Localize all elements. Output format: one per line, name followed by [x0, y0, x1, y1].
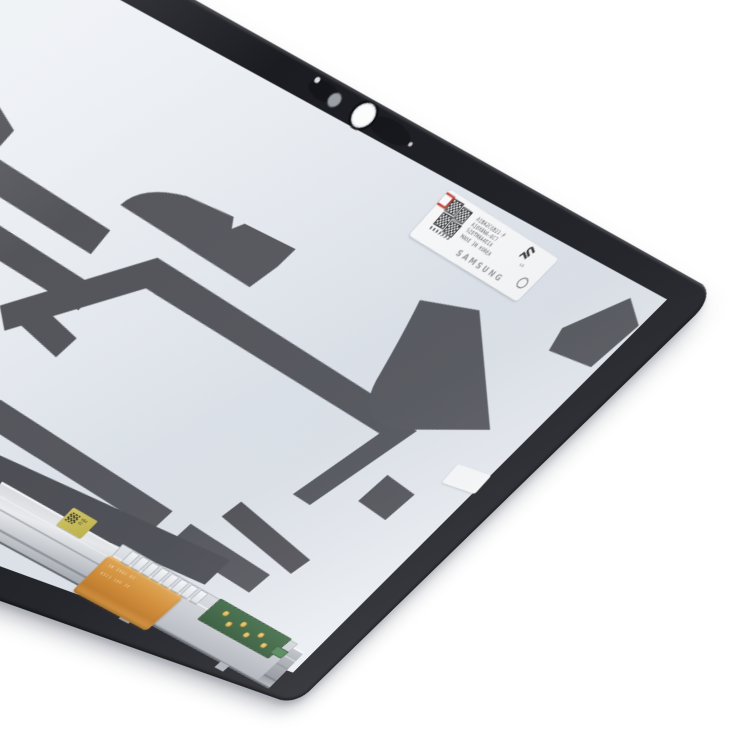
patch-big-curved: [331, 286, 564, 460]
gold-pad: [258, 642, 269, 650]
patch-small-left: [0, 82, 28, 158]
photo-stage: A1BA2CGB21-F A10XBNA-0C7 S2DTM8A4E1X MAD…: [0, 0, 750, 750]
patch-pentagon: [543, 284, 654, 372]
tablet-lcd-assembly-back: A1BA2CGB21-F A10XBNA-0C7 S2DTM8A4E1X MAD…: [0, 0, 718, 705]
gold-pad: [241, 631, 252, 639]
gold-pad: [223, 620, 234, 628]
service-label-text: H94 02: [76, 518, 88, 527]
patch-small-right: [353, 473, 420, 521]
gold-pad: [238, 621, 249, 629]
cert-circle-mark: [514, 276, 531, 290]
gold-pad: [256, 631, 267, 639]
gold-pad: [220, 610, 231, 618]
